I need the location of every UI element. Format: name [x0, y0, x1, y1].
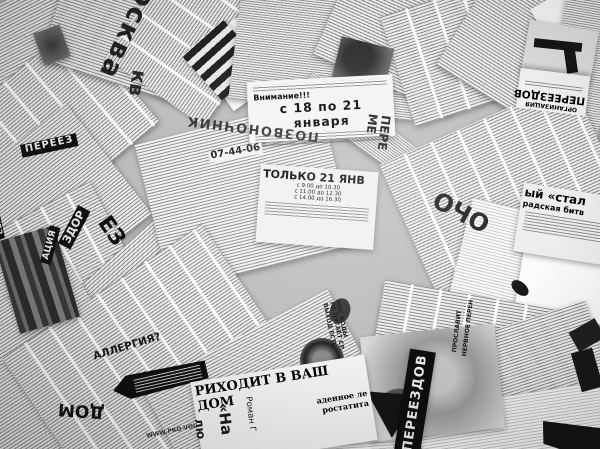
vertical-headline-lyu: лю: [193, 418, 208, 440]
organizacia-pereezdov-label: ОРГАНИЗАЦИЯ ПЕРЕЕЗДОВ: [516, 68, 590, 116]
face-photo: [360, 323, 505, 442]
tolko-ad-scrap: ТОЛЬКО 21 ЯНВ с 9.00 до 10.30 с 11.00 до…: [255, 164, 378, 250]
newspaper-collage-photo: осква кв Внимание!!! с 18 по 21 января П…: [0, 0, 600, 449]
headline-fragment-kv: кв: [125, 68, 150, 97]
headline-dom: ДОМ: [58, 399, 106, 420]
headline-pere-me: ПЕРЕ МЕ: [363, 113, 392, 151]
handgun-grip: [564, 48, 578, 73]
vertical-headline-na: «На: [214, 402, 234, 436]
